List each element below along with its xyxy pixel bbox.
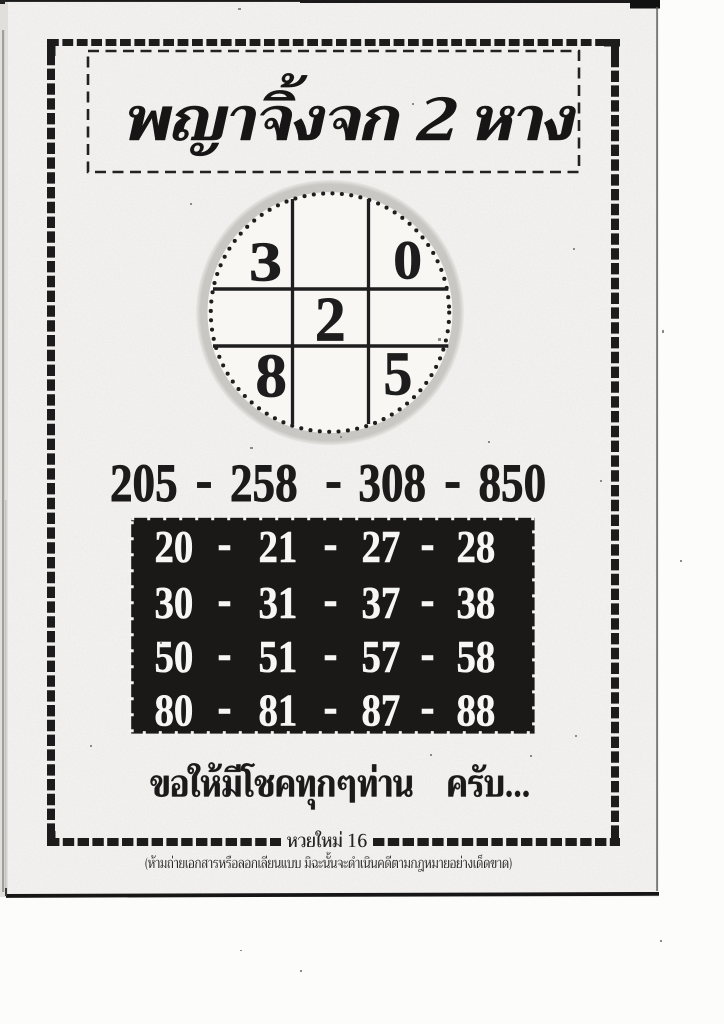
svg-text:57: 57 xyxy=(362,632,401,683)
svg-text:80: 80 xyxy=(155,686,194,737)
svg-text:850: 850 xyxy=(479,453,547,513)
svg-text:5: 5 xyxy=(383,339,412,409)
svg-text:38: 38 xyxy=(457,578,496,629)
svg-text:3: 3 xyxy=(249,231,282,293)
svg-text:258: 258 xyxy=(230,453,298,513)
svg-text:27: 27 xyxy=(362,522,401,573)
svg-text:0: 0 xyxy=(393,231,422,292)
svg-text:87: 87 xyxy=(362,686,401,737)
svg-text:8: 8 xyxy=(255,341,287,410)
svg-text:58: 58 xyxy=(457,632,496,683)
svg-text:205: 205 xyxy=(110,453,178,513)
svg-text:20: 20 xyxy=(155,522,194,573)
svg-text:50: 50 xyxy=(155,632,194,683)
svg-text:88: 88 xyxy=(457,686,496,737)
svg-text:28: 28 xyxy=(457,522,496,573)
svg-text:30: 30 xyxy=(155,578,194,629)
svg-text:81: 81 xyxy=(259,686,298,737)
svg-text:2: 2 xyxy=(315,284,346,355)
svg-text:31: 31 xyxy=(259,578,298,629)
svg-text:21: 21 xyxy=(259,522,298,573)
svg-text:308: 308 xyxy=(358,453,426,513)
svg-text:51: 51 xyxy=(259,632,298,683)
svg-text:37: 37 xyxy=(362,578,401,629)
